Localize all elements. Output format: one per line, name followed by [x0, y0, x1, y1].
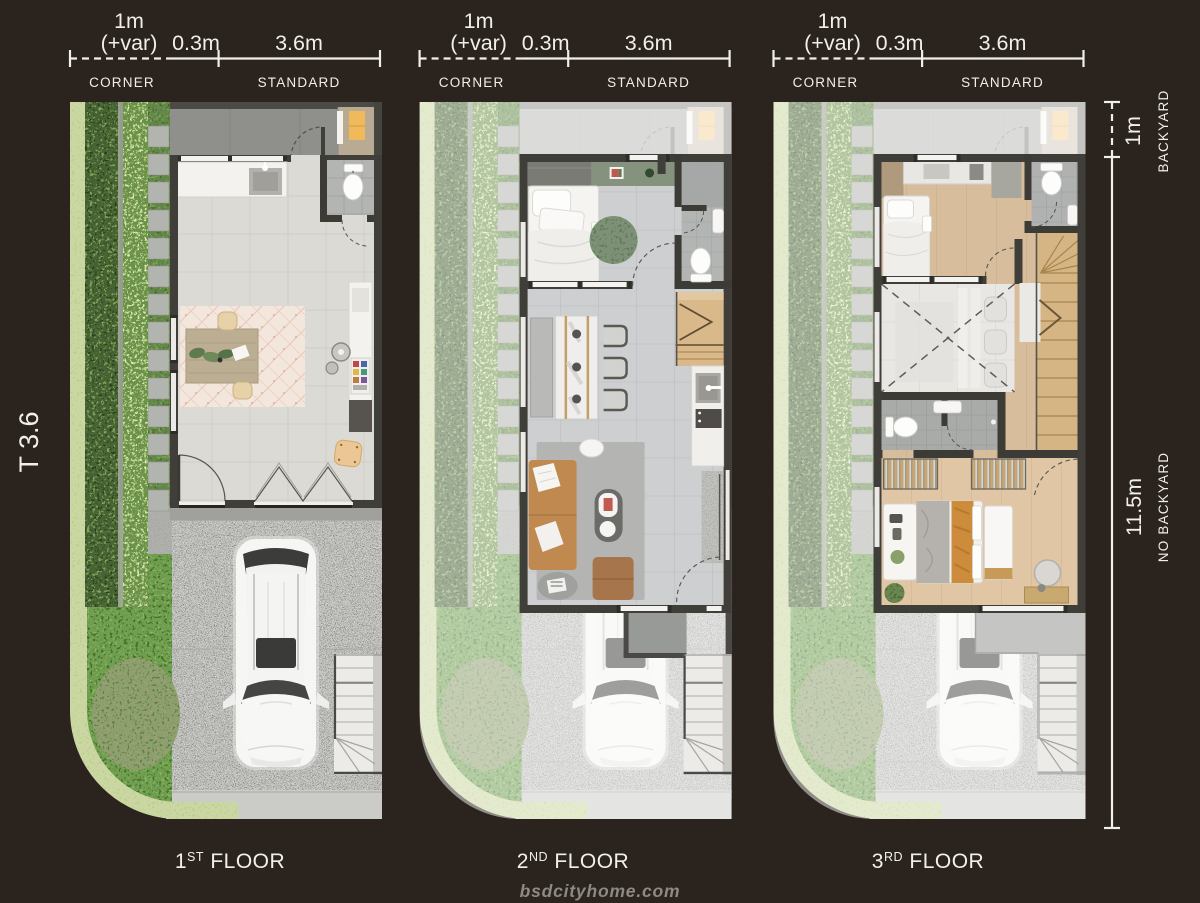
svg-text:0.3m: 0.3m [876, 31, 924, 55]
svg-text:bsdcityhome.com: bsdcityhome.com [520, 881, 681, 901]
svg-text:STANDARD: STANDARD [961, 75, 1044, 90]
svg-text:STANDARD: STANDARD [607, 75, 690, 90]
svg-text:STANDARD: STANDARD [258, 75, 341, 90]
svg-text:3.6m: 3.6m [979, 31, 1027, 55]
svg-text:(+var): (+var) [804, 31, 861, 55]
svg-text:0.3m: 0.3m [522, 31, 570, 55]
svg-text:0.3m: 0.3m [172, 31, 220, 55]
svg-text:CORNER: CORNER [793, 75, 859, 90]
svg-text:3.6m: 3.6m [625, 31, 673, 55]
svg-text:11.5m: 11.5m [1122, 478, 1146, 536]
svg-text:CORNER: CORNER [89, 75, 155, 90]
svg-text:1m: 1m [1121, 116, 1145, 146]
svg-text:(+var): (+var) [450, 31, 507, 55]
svg-text:3.6m: 3.6m [275, 31, 323, 55]
svg-text:BACKYARD: BACKYARD [1156, 90, 1171, 173]
svg-text:CORNER: CORNER [439, 75, 505, 90]
svg-text:1m: 1m [464, 9, 494, 33]
svg-text:NO BACKYARD: NO BACKYARD [1156, 452, 1171, 562]
svg-text:1m: 1m [114, 9, 144, 33]
svg-text:T 3.6: T 3.6 [14, 411, 44, 472]
svg-text:(+var): (+var) [101, 31, 158, 55]
svg-text:1m: 1m [818, 9, 848, 33]
